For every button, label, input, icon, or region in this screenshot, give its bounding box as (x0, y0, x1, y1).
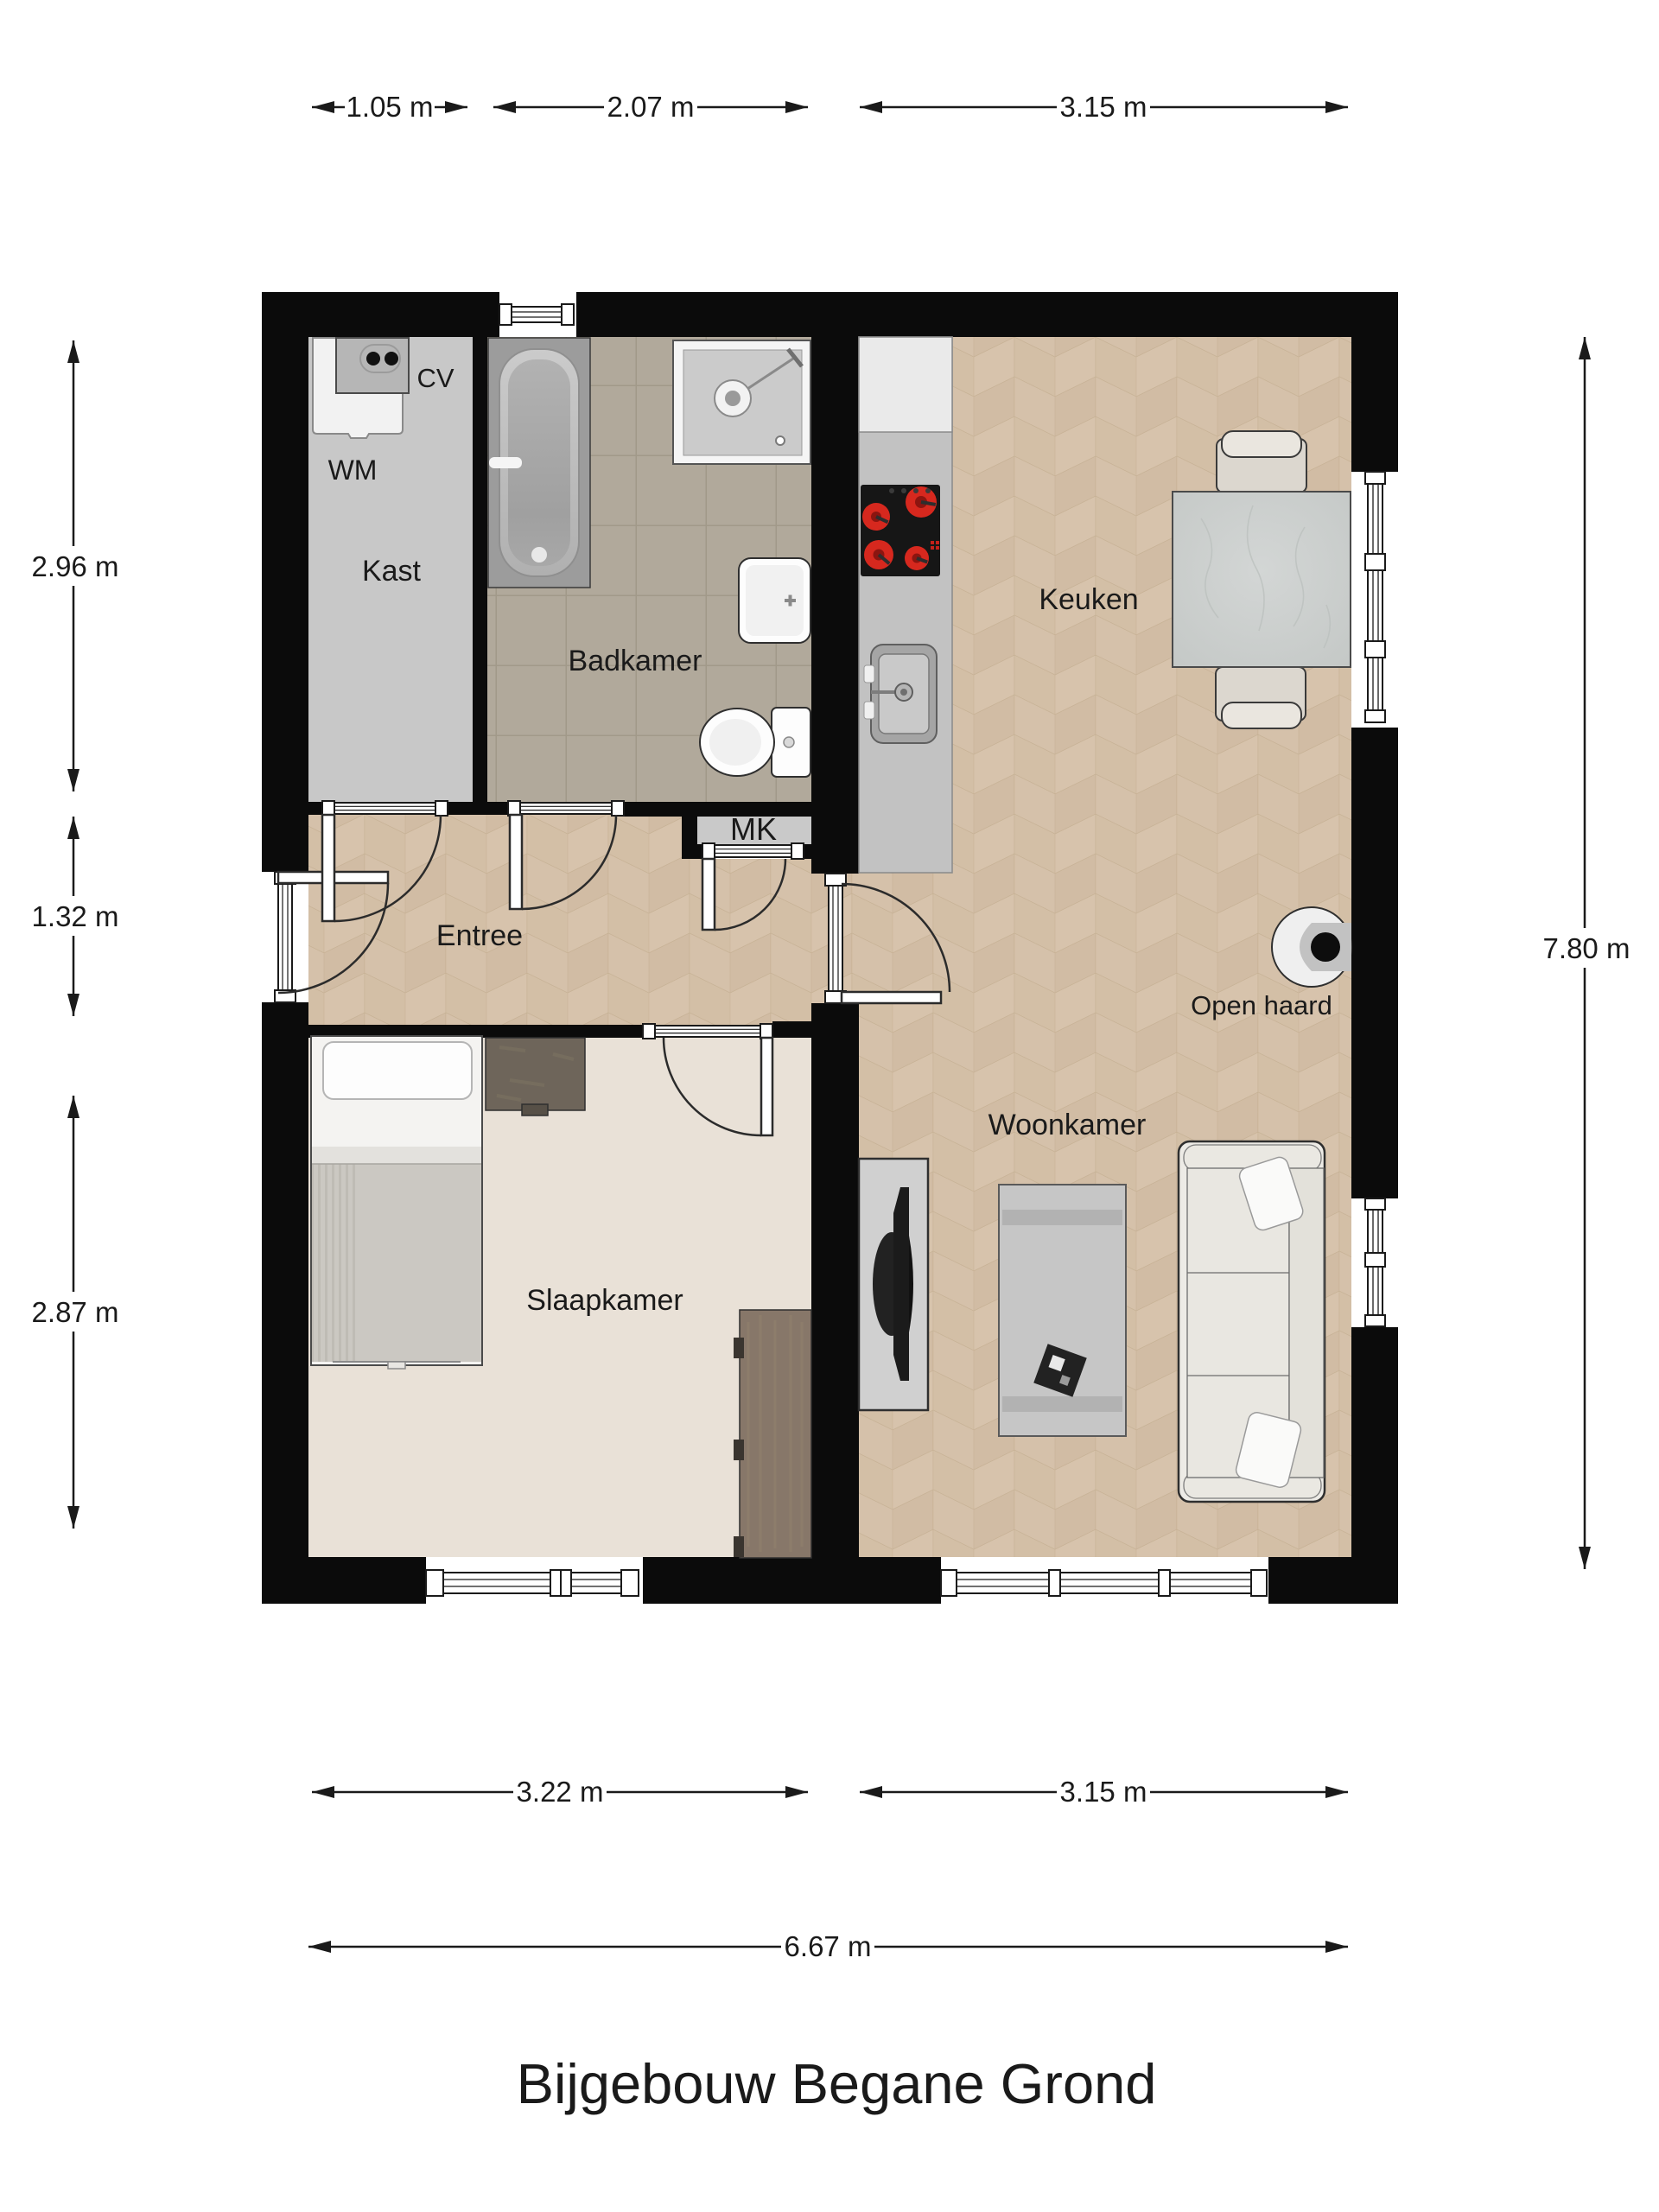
svg-text:Woonkamer: Woonkamer (988, 1109, 1147, 1141)
svg-text:2.96 m: 2.96 m (32, 550, 119, 582)
svg-text:3.15 m: 3.15 m (1060, 1776, 1147, 1808)
svg-text:Kast: Kast (362, 555, 422, 588)
svg-text:Bijgebouw Begane Grond: Bijgebouw Begane Grond (517, 2052, 1157, 2115)
svg-text:1.05 m: 1.05 m (346, 91, 434, 123)
svg-text:1.32 m: 1.32 m (32, 900, 119, 932)
svg-text:2.87 m: 2.87 m (32, 1296, 119, 1328)
svg-text:MK: MK (730, 811, 777, 847)
svg-text:Badkamer: Badkamer (569, 645, 702, 677)
svg-text:Entree: Entree (436, 919, 523, 952)
svg-text:2.07 m: 2.07 m (607, 91, 695, 123)
svg-text:6.67 m: 6.67 m (785, 1930, 872, 1962)
svg-text:Open haard: Open haard (1191, 990, 1332, 1020)
svg-text:Keuken: Keuken (1039, 583, 1138, 616)
svg-text:CV: CV (416, 363, 454, 393)
svg-text:7.80 m: 7.80 m (1543, 932, 1630, 964)
svg-text:3.22 m: 3.22 m (517, 1776, 604, 1808)
svg-text:3.15 m: 3.15 m (1060, 91, 1147, 123)
svg-text:WM: WM (328, 454, 378, 486)
svg-text:Slaapkamer: Slaapkamer (526, 1284, 683, 1317)
